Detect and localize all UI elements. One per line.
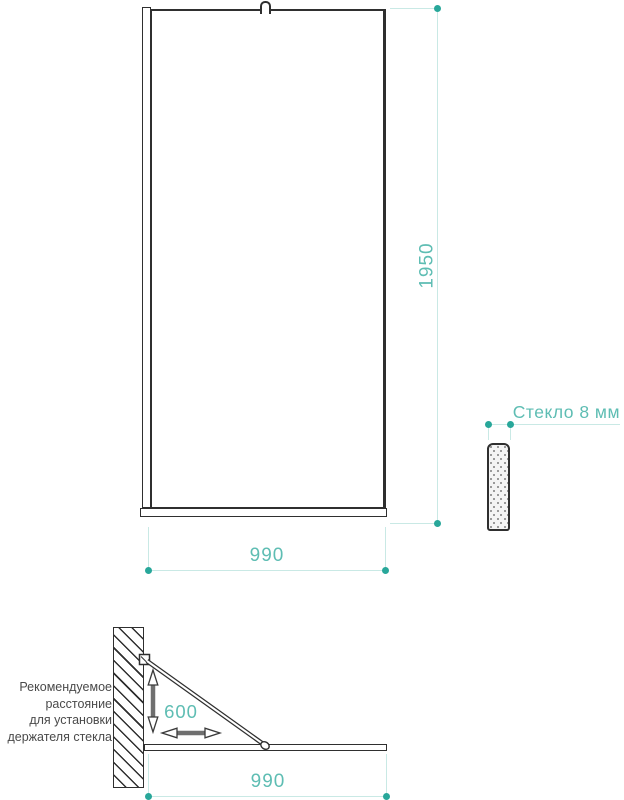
plan-width-ext-right: [386, 754, 387, 796]
thickness-dot-right: [507, 421, 514, 428]
glass-section: [487, 443, 510, 531]
installation-drawing: 1950 990 Стекло 8 мм Рекомендуемое расст…: [0, 0, 624, 800]
height-dim-dot-bottom: [434, 520, 441, 527]
front-width-dot-left: [145, 567, 152, 574]
front-width-ext-right: [385, 527, 386, 570]
top-holder-clip: [260, 1, 271, 14]
plan-width-label: 990: [237, 772, 299, 791]
front-width-dim-line: [148, 570, 386, 571]
holder-note-line: расстояние: [0, 696, 112, 713]
horizontal-double-arrow-icon: [162, 728, 220, 738]
vertical-double-arrow-icon: [148, 670, 158, 732]
plan-width-ext-left: [148, 754, 149, 796]
plan-width-dot-left: [145, 793, 152, 800]
glass-thickness-label: Стекло 8 мм: [498, 404, 620, 422]
holder-distance-label: 600: [153, 703, 209, 722]
plan-width-dot-right: [383, 793, 390, 800]
front-width-ext-left: [148, 527, 149, 570]
wall-hatch: [113, 627, 144, 788]
glass-panel-front: [150, 9, 386, 509]
height-dim-tick-bottom: [390, 523, 437, 524]
thickness-ext-right: [510, 427, 511, 440]
holder-note-line: для установки: [0, 712, 112, 729]
thickness-dot-left: [485, 421, 492, 428]
front-width-label: 990: [236, 546, 298, 565]
height-dim-dot-top: [434, 5, 441, 12]
front-width-dot-right: [382, 567, 389, 574]
holder-note-line: держателя стекла: [0, 729, 112, 746]
height-dim-tick-top: [390, 8, 437, 9]
plan-width-dim-line: [148, 796, 387, 797]
height-dim-label: 1950: [418, 235, 437, 297]
glass-panel-plan: [144, 744, 387, 751]
holder-note-line: Рекомендуемое: [0, 679, 112, 696]
holder-note: Рекомендуемое расстояние для установки д…: [0, 679, 112, 745]
bottom-profile-front: [140, 508, 387, 517]
thickness-ext-left: [488, 427, 489, 440]
